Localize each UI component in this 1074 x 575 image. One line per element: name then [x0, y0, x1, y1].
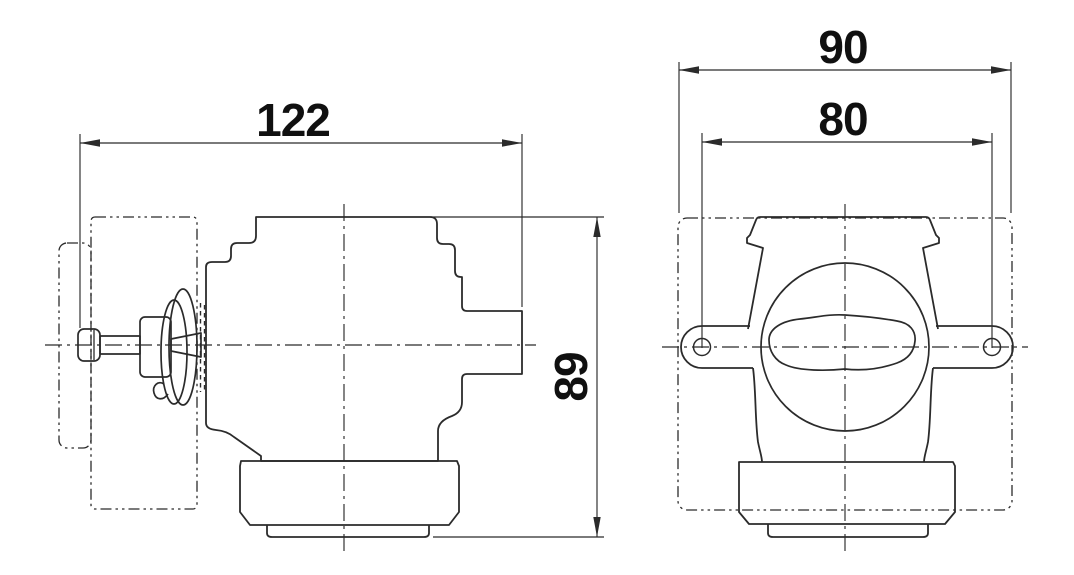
front-bottom-nut-lip — [768, 524, 928, 537]
stem-assembly — [78, 289, 205, 405]
dim-122-arrow-left — [80, 139, 100, 146]
bonnet-outline — [747, 217, 939, 329]
dim-89-arrow-bottom — [593, 517, 600, 537]
dimension-122: 122 — [80, 94, 522, 328]
dim-80-arrow-right — [972, 138, 992, 145]
dimension-80: 80 — [702, 93, 992, 348]
dim-80-label: 80 — [818, 93, 867, 145]
dim-122-arrow-right — [502, 139, 522, 146]
bottom-nut-outline — [240, 461, 459, 525]
front-body-side-left — [753, 368, 762, 462]
dim-80-arrow-left — [702, 138, 722, 145]
handle-blob — [769, 315, 915, 370]
bottom-nut-lip — [267, 525, 429, 537]
dim-90-arrow-left — [679, 66, 699, 73]
spring-washer — [140, 317, 171, 377]
front-bottom-nut-outline — [739, 462, 955, 524]
dim-89-arrow-top — [593, 217, 600, 237]
dimension-89: 89 — [430, 217, 604, 537]
valve-body-outline — [206, 217, 522, 461]
dim-90-label: 90 — [818, 21, 867, 73]
technical-drawing-canvas: 122 89 — [0, 0, 1074, 575]
drawing-sheet: 122 89 — [0, 0, 1074, 575]
dim-90-arrow-right — [991, 66, 1011, 73]
phantom-envelope-large — [91, 217, 197, 509]
side-view: 122 89 — [45, 94, 604, 553]
dim-89-label: 89 — [545, 352, 597, 401]
front-view: 90 80 — [662, 21, 1028, 553]
front-body-side-right — [924, 368, 933, 462]
dim-122-label: 122 — [256, 94, 330, 146]
